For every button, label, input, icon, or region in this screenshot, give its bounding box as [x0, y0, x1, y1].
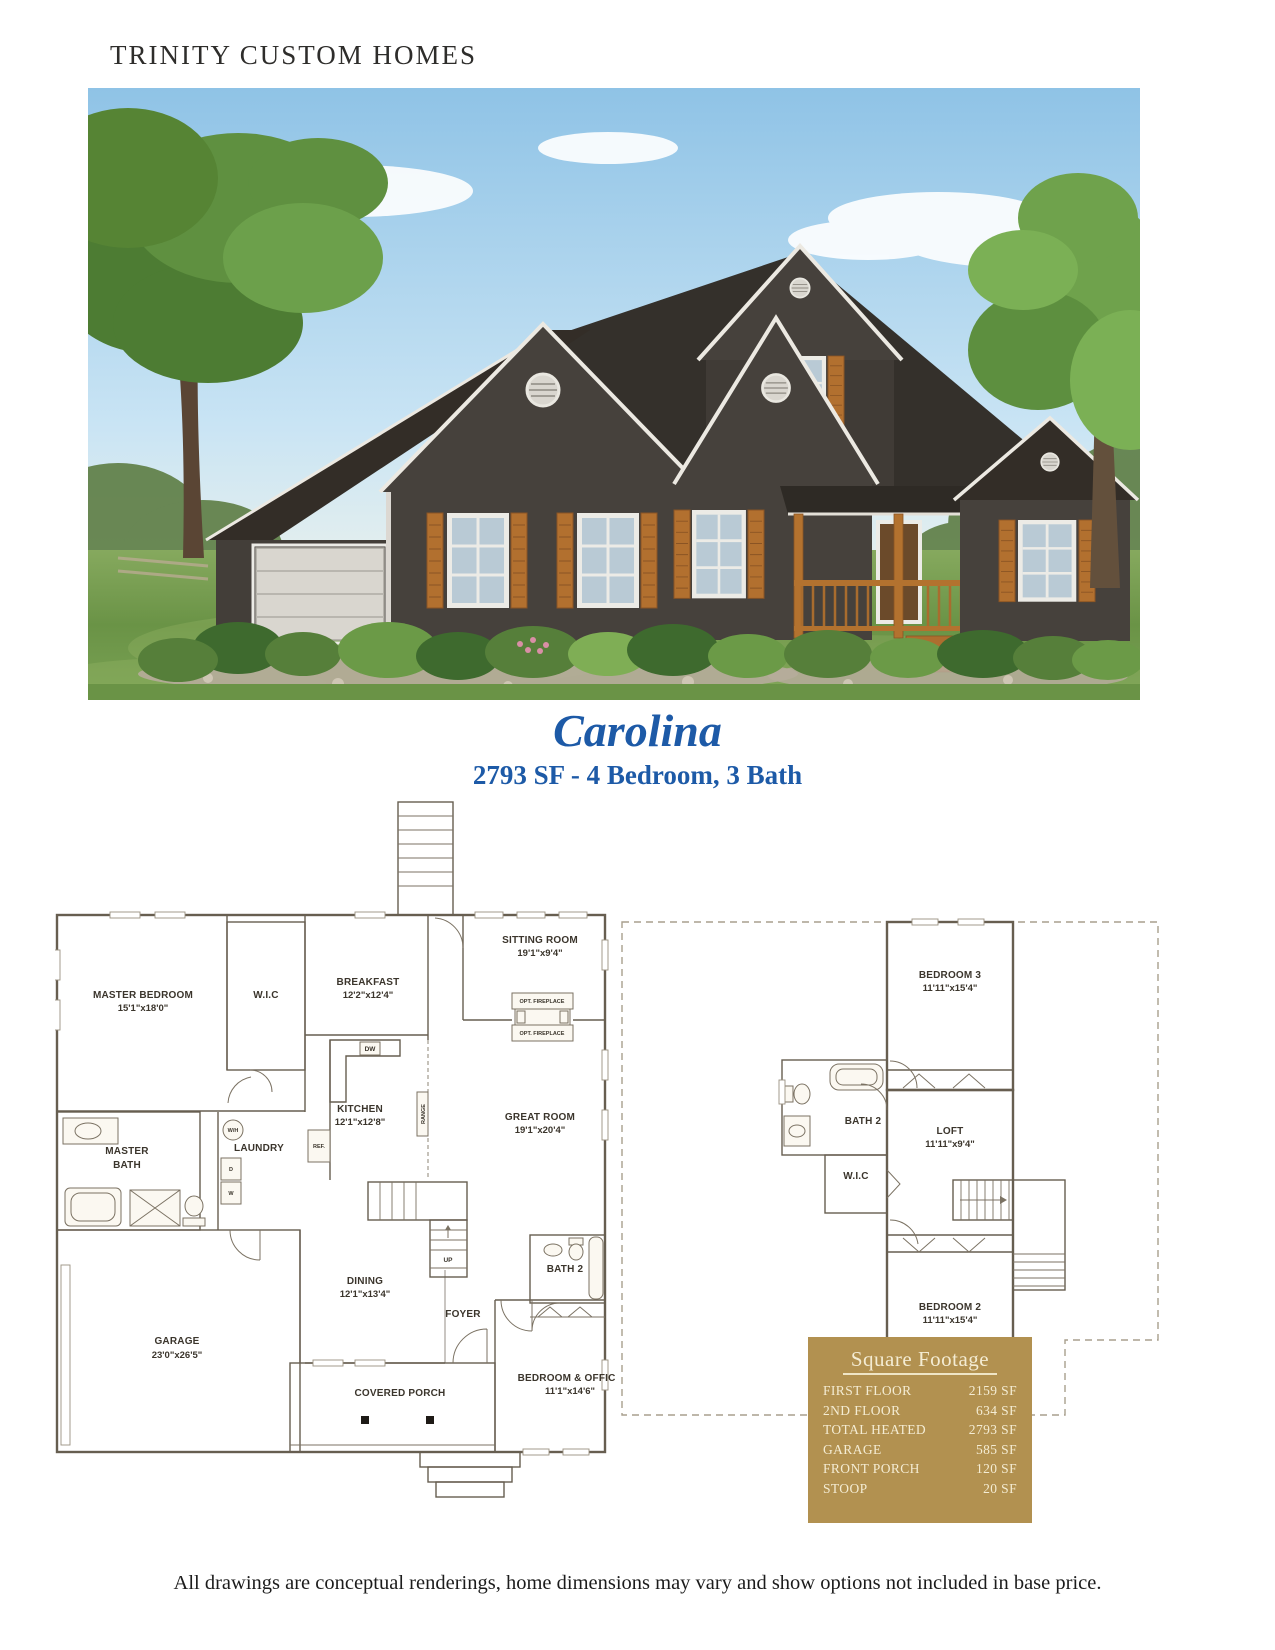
room-labels-f2: BEDROOM 3 11'11"x15'4" BATH 2 LOFT 11'11…: [843, 970, 981, 1326]
kitchen-label: KITCHEN: [337, 1104, 383, 1115]
svg-text:12'1"x13'4": 12'1"x13'4": [340, 1289, 391, 1300]
svg-text:BATH: BATH: [113, 1160, 141, 1171]
svg-text:11'11"x9'4": 11'11"x9'4": [925, 1139, 974, 1150]
range-label: RANGE: [421, 1104, 427, 1124]
breakfast-label: BREAKFAST: [337, 977, 400, 988]
bedroom3-label: BEDROOM 3: [919, 970, 982, 981]
porch-area: [290, 1363, 495, 1452]
house-rendering: [88, 88, 1140, 700]
brand-header: TRINITY CUSTOM HOMES: [110, 40, 477, 71]
foyer-label: FOYER: [445, 1309, 481, 1320]
stairs-up-label: UP: [443, 1257, 453, 1264]
dishwasher-label: DW: [365, 1046, 377, 1053]
bedroom-office-label: BEDROOM & OFFICE: [518, 1373, 615, 1384]
table-row: GARAGE585 SF: [823, 1440, 1017, 1460]
back-stairs: [398, 802, 453, 915]
square-footage-title: Square Footage: [808, 1347, 1032, 1372]
bath2-label: BATH 2: [547, 1264, 584, 1275]
wic-label: W.I.C: [253, 990, 278, 1001]
opt-fireplace-label-top: OPT. FIREPLACE: [520, 999, 565, 1005]
master-bedroom-label: MASTER BEDROOM: [93, 990, 193, 1001]
interior-stairs: UP: [368, 1182, 467, 1277]
svg-text:12'1"x12'8": 12'1"x12'8": [335, 1117, 386, 1128]
bedroom3-room: [887, 922, 1013, 1090]
table-row: TOTAL HEATED2793 SF: [823, 1420, 1017, 1440]
svg-text:23'0"x26'5": 23'0"x26'5": [152, 1350, 203, 1361]
dining-label: DINING: [347, 1276, 383, 1287]
bath2-f2-label: BATH 2: [845, 1116, 882, 1127]
svg-text:15'1"x18'0": 15'1"x18'0": [118, 1003, 169, 1014]
kitchen-fixtures: DW REF. RANGE: [308, 1040, 428, 1162]
table-row: FIRST FLOOR2159 SF: [823, 1381, 1017, 1401]
loft-label: LOFT: [937, 1126, 964, 1137]
plan-name: Carolina: [0, 704, 1275, 757]
brochure-page: TRINITY CUSTOM HOMES: [0, 0, 1275, 1650]
water-heater-label: W/H: [228, 1128, 239, 1134]
wic-f2-label: W.I.C: [843, 1171, 868, 1182]
table-row: STOOP20 SF: [823, 1479, 1017, 1499]
table-row: 2ND FLOOR634 SF: [823, 1401, 1017, 1421]
first-floor-plan: UP DW REF. RANGE W/H D W: [55, 800, 615, 1510]
sitting-room-label: SITTING ROOM: [502, 935, 578, 946]
svg-text:11'11"x15'4": 11'11"x15'4": [923, 1315, 978, 1326]
dryer-label: D: [229, 1167, 233, 1173]
svg-text:19'1"x20'4": 19'1"x20'4": [515, 1125, 566, 1136]
opt-fireplace-label-bottom: OPT. FIREPLACE: [520, 1031, 565, 1037]
refrigerator-label: REF.: [313, 1144, 325, 1150]
wic-room-f2: [825, 1155, 887, 1213]
svg-text:19'1"x9'4": 19'1"x9'4": [517, 948, 562, 959]
laundry-fixtures: W/H D W: [221, 1120, 243, 1204]
disclaimer-text: All drawings are conceptual renderings, …: [0, 1572, 1275, 1595]
master-bath-fixtures: [63, 1118, 205, 1226]
landscaping: [88, 622, 1140, 700]
master-bath-label: MASTER: [105, 1146, 149, 1157]
garage-label: GARAGE: [154, 1336, 199, 1347]
square-footage-table: Square Footage FIRST FLOOR2159 SF 2ND FL…: [808, 1337, 1032, 1523]
svg-text:11'1"x14'6": 11'1"x14'6": [545, 1386, 595, 1397]
porch-details: [290, 1416, 520, 1497]
table-row: FRONT PORCH120 SF: [823, 1459, 1017, 1479]
bath2-fixtures-f2: [784, 1064, 883, 1146]
covered-porch-label: COVERED PORCH: [355, 1388, 446, 1399]
great-room-label: GREAT ROOM: [505, 1112, 575, 1123]
plan-specs: 2793 SF - 4 Bedroom, 3 Bath: [0, 760, 1275, 791]
washer-label: W: [228, 1191, 234, 1197]
closet-chevrons: [530, 1307, 605, 1317]
svg-text:11'11"x15'4": 11'11"x15'4": [923, 983, 978, 994]
laundry-label: LAUNDRY: [234, 1143, 284, 1154]
svg-text:12'2"x12'4": 12'2"x12'4": [343, 990, 394, 1001]
fireplace-unit: OPT. FIREPLACE OPT. FIREPLACE: [512, 993, 573, 1041]
bedroom2-label: BEDROOM 2: [919, 1302, 982, 1313]
